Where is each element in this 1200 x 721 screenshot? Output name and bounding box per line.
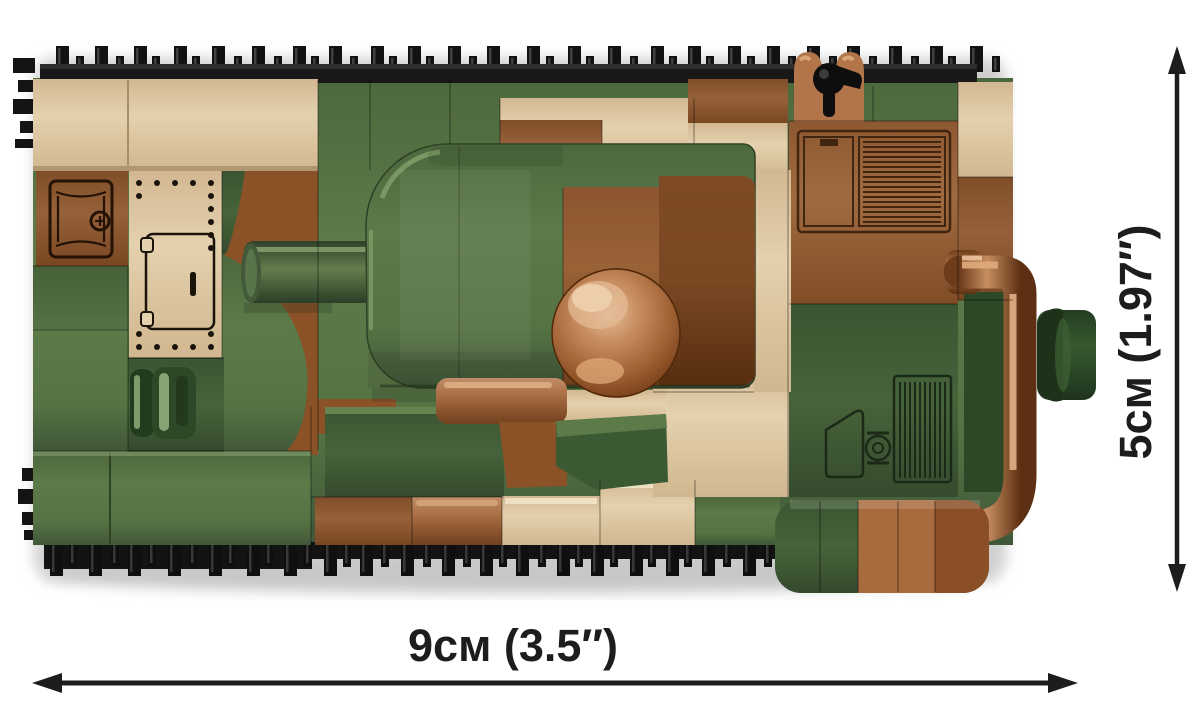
svg-text:9см (3.5″): 9см (3.5″) [408,620,618,671]
svg-text:5см (1.97″): 5см (1.97″) [1110,225,1161,460]
